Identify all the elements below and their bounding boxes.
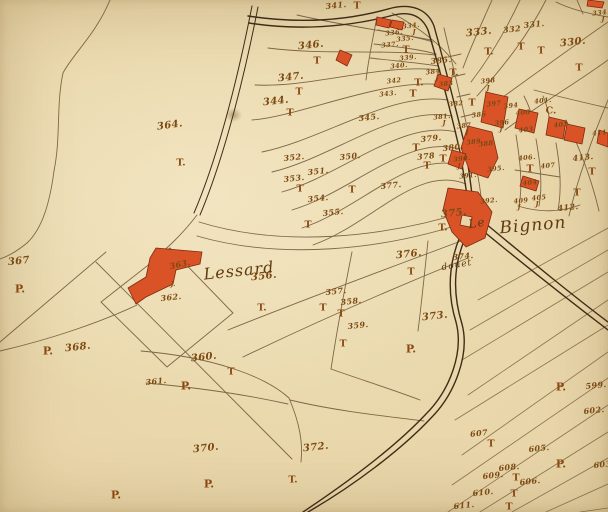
parcel-number-label: 610. [472,487,494,497]
parcel-number-label: 342 [386,77,401,85]
landuse-mark: P. [111,490,121,501]
landuse-mark: T [423,161,430,171]
parcel-number-label: 337. [381,41,399,49]
landuse-mark: J [442,120,445,127]
parcel-number-label: 332 [503,24,522,34]
landuse-mark: T [295,87,302,97]
parcel-number-label: 351. [307,166,329,176]
parcel-number-label: 400 [515,109,530,117]
parcel-number-label: 331. [523,19,545,29]
parcel-number-label: 391. [459,172,477,180]
parcel-number-label: 605. [528,443,550,453]
landuse-mark: T [588,167,595,177]
landuse-mark: C. [546,106,557,116]
parcel-number-label: 343. [379,90,397,98]
landuse-mark: J [435,75,438,82]
parcel-number-label: 385. [430,55,452,65]
landuse-mark: T. [257,303,266,313]
landuse-mark: J [465,129,468,136]
landuse-mark: T [348,185,355,195]
parcel-number-label: 411. [592,129,608,137]
map-labels-layer: 364.367368.341.346.347.344.345.333.33233… [0,0,608,512]
landuse-mark: T [304,220,311,230]
landuse-mark: J [535,201,538,208]
landuse-mark: T. [449,68,458,78]
landuse-mark: P. [556,382,566,393]
parcel-number-label: 392. [480,197,498,205]
landuse-mark: J. [171,281,176,288]
parcel-number-label: 353. [283,173,305,183]
parcel-number-label: 405 [531,194,546,202]
parcel-number-label: 345. [358,112,380,122]
parcel-number-label: 383 [438,80,453,88]
parcel-number-label: 352. [283,152,305,162]
place-name-label: douet [441,259,473,273]
parcel-number-label: 340. [390,62,408,70]
parcel-number-label: 367 [7,256,30,268]
landuse-mark: T [512,473,519,483]
parcel-number-label: 395. [487,165,505,173]
landuse-mark: T [439,154,446,164]
landuse-mark: T [526,164,533,174]
landuse-mark: T [575,63,582,73]
parcel-number-label: 336. [385,29,403,37]
landuse-mark: T. [438,223,447,233]
landuse-mark: T [319,303,326,313]
landuse-mark: T [517,42,524,52]
landuse-mark: T [227,367,234,377]
landuse-mark: J [412,29,415,36]
parcel-number-label: 372. [303,442,330,455]
landuse-mark: T. [414,78,423,88]
landuse-mark: T. [288,475,297,485]
landuse-mark: T [537,46,544,56]
landuse-mark: T [573,188,580,198]
parcel-number-label: 334. [402,22,420,30]
landuse-mark: T [296,184,303,194]
parcel-number-label: 602. [583,405,605,415]
landuse-mark: T [412,143,419,153]
landuse-mark: P. [204,479,214,490]
parcel-number-label: 379. [420,133,442,143]
parcel-number-label: 346. [298,40,325,53]
landuse-mark: T [510,489,517,499]
parcel-number-label: 380. [442,142,464,152]
landuse-mark: P. [43,346,53,357]
parcel-number-label: 390. [453,155,471,163]
landuse-mark: P. [181,381,191,392]
parcel-number-label: 606. [519,476,541,486]
parcel-number-label: 603. [593,459,608,469]
parcel-number-label: 387 [456,122,471,130]
landuse-mark: T. [176,158,185,168]
landuse-mark: T. [484,47,493,57]
parcel-number-label: 334. [592,9,608,17]
landuse-mark: T [337,309,344,319]
parcel-number-label: 412. [557,202,579,212]
parcel-number-label: 397 [486,100,501,108]
parcel-number-label: 333. [466,27,493,40]
parcel-number-label: 347. [278,72,305,85]
landuse-mark: J [517,204,520,211]
landuse-mark: T [407,267,414,277]
landuse-mark: J [499,126,502,133]
parcel-number-label: 354. [307,193,329,203]
landuse-mark: T [353,1,360,11]
parcel-number-label: 402 [553,121,568,129]
parcel-number-label: 360. [191,352,218,365]
parcel-number-label: 341. [325,0,347,10]
landuse-mark: T [339,339,346,349]
landuse-mark: T [409,89,416,99]
parcel-number-label: 359. [347,320,369,330]
landuse-mark: P. [15,284,25,295]
parcel-number-label: 363. [169,258,191,270]
parcel-number-label: 358. [340,296,362,306]
parcel-number-label: 382 [448,100,463,108]
parcel-number-label: 611. [453,500,475,510]
landuse-mark: J [486,85,489,92]
landuse-mark: T [286,108,293,118]
landuse-mark: T [487,439,494,449]
landuse-mark: T [505,502,512,512]
landuse-mark: T [402,45,409,55]
place-name-label: Bignon [499,215,567,238]
parcel-number-label: 350. [339,151,361,161]
parcel-number-label: 355. [322,207,344,217]
landuse-mark: J [601,16,604,23]
parcel-number-label: 609. [482,470,504,480]
parcel-number-label: 375. [441,208,468,221]
parcel-number-label: 406. [518,154,536,162]
landuse-mark: J [457,163,460,170]
parcel-number-label: 389. [466,138,484,146]
parcel-number-label: 404 [522,179,537,187]
parcel-number-label: 357. [325,286,347,296]
place-name-label: Le [468,216,487,231]
parcel-number-label: 403 [518,126,533,134]
landuse-mark: P. [406,344,416,355]
landuse-mark: T [313,56,320,66]
parcel-number-label: 344. [263,96,290,109]
parcel-number-label: 377. [380,180,402,190]
parcel-number-label: 599. [585,380,607,390]
landuse-mark: P. [556,459,566,470]
parcel-number-label: 330. [560,37,587,50]
parcel-number-label: 407 [540,162,555,170]
landuse-mark: T [468,98,475,108]
parcel-number-label: 376. [396,249,423,262]
parcel-number-label: 362. [160,292,182,302]
parcel-number-label: 370. [193,443,220,456]
parcel-number-label: 373. [422,311,449,324]
parcel-number-label: 409 [513,197,528,205]
parcel-number-label: 413. [572,152,594,162]
parcel-number-label: 607 [470,428,489,438]
parcel-number-label: 401. [534,97,552,105]
parcel-number-label: 386 [471,111,486,119]
cadastral-map: 364.367368.341.346.347.344.345.333.33233… [0,0,608,512]
parcel-number-label: 364. [156,119,183,133]
parcel-number-label: 368. [65,342,92,355]
parcel-number-label: 361. [145,376,167,386]
